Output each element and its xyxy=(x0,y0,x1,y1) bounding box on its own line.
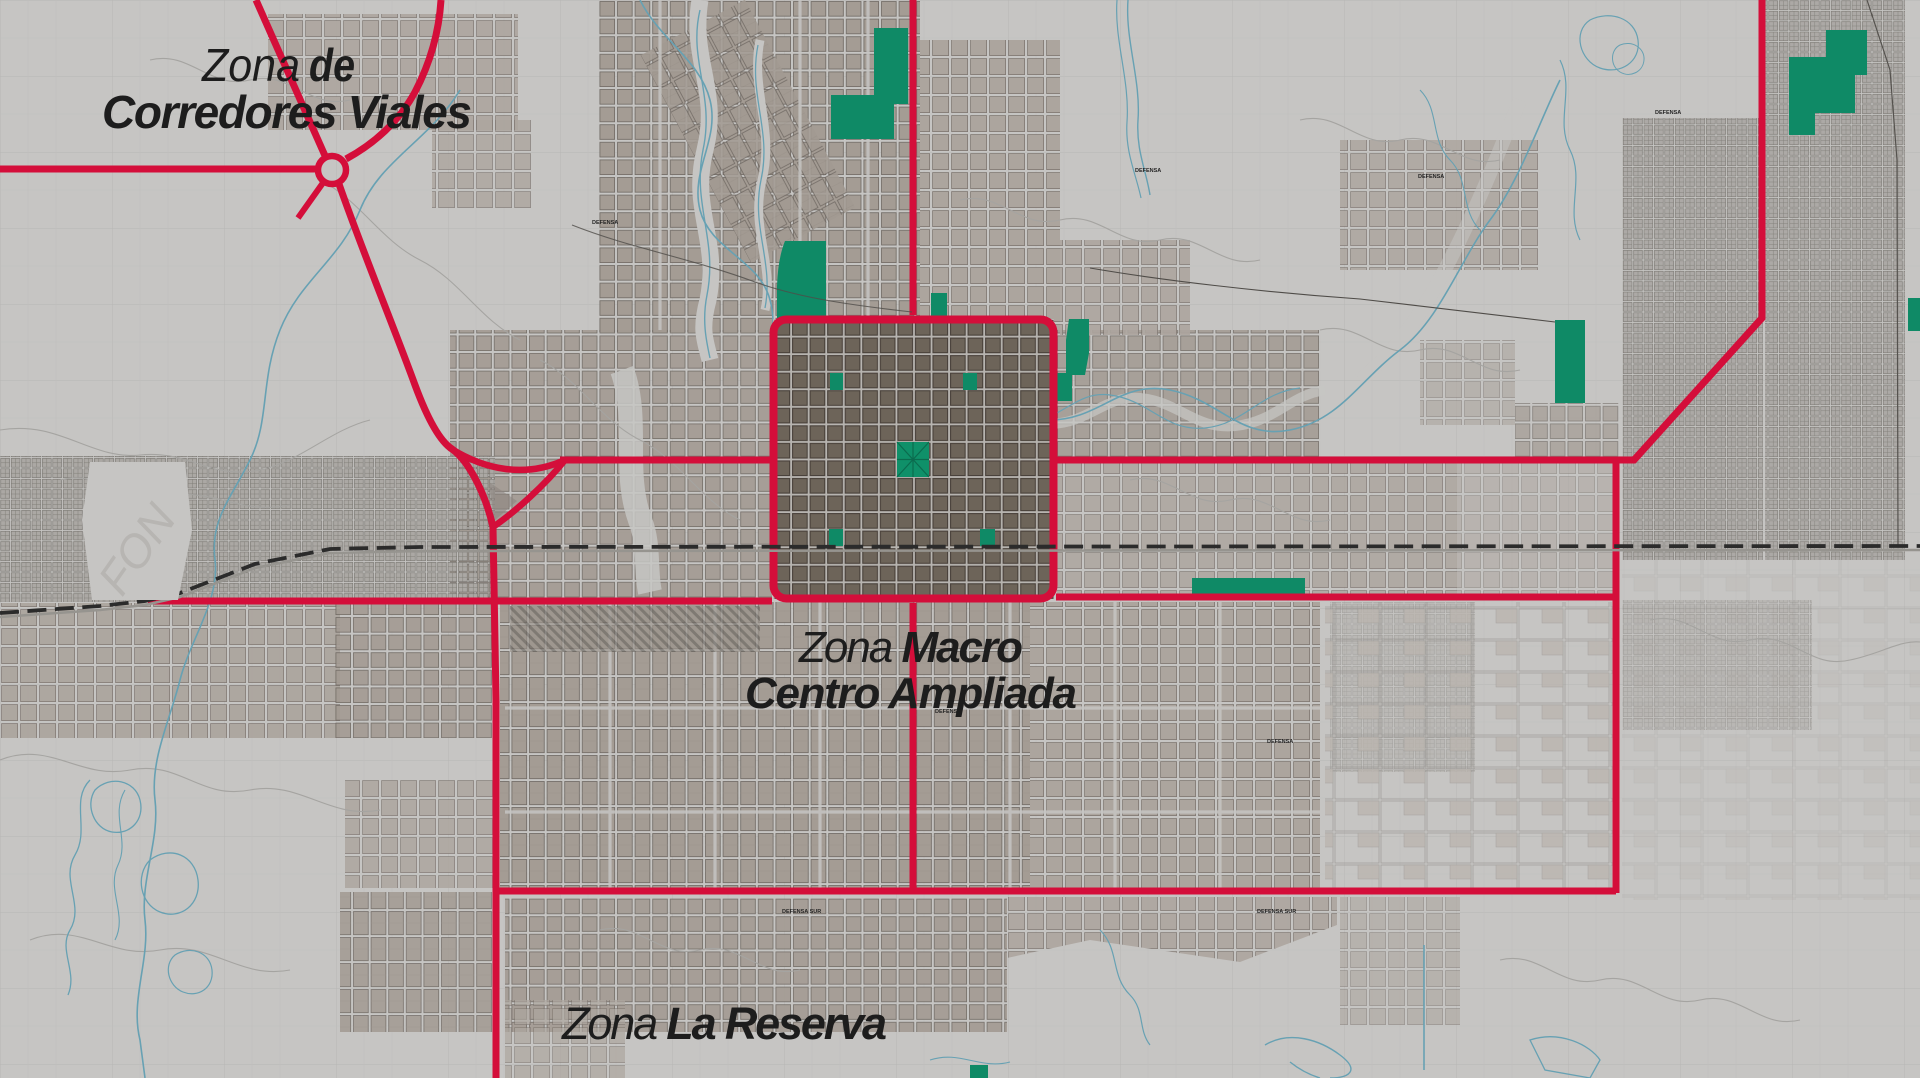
svg-text:Corredores Viales: Corredores Viales xyxy=(102,86,472,138)
svg-text:Zona: Zona xyxy=(201,39,300,91)
svg-text:de: de xyxy=(309,39,355,91)
svg-text:DEFENSA: DEFENSA xyxy=(592,220,618,226)
svg-text:DEFENSA SUR: DEFENSA SUR xyxy=(1257,909,1296,915)
svg-text:Centro Ampliada: Centro Ampliada xyxy=(745,669,1077,718)
svg-text:DEFENSA: DEFENSA xyxy=(1135,168,1161,174)
svg-text:Zona Macro: Zona Macro xyxy=(798,623,1023,672)
svg-text:DEFENSA: DEFENSA xyxy=(1655,110,1681,116)
svg-text:Zona La Reserva: Zona La Reserva xyxy=(561,998,887,1049)
svg-text:DEFENSA: DEFENSA xyxy=(1418,174,1444,180)
svg-text:DEFENSA SUR: DEFENSA SUR xyxy=(782,909,821,915)
svg-text:DEFENSA: DEFENSA xyxy=(1267,739,1293,745)
